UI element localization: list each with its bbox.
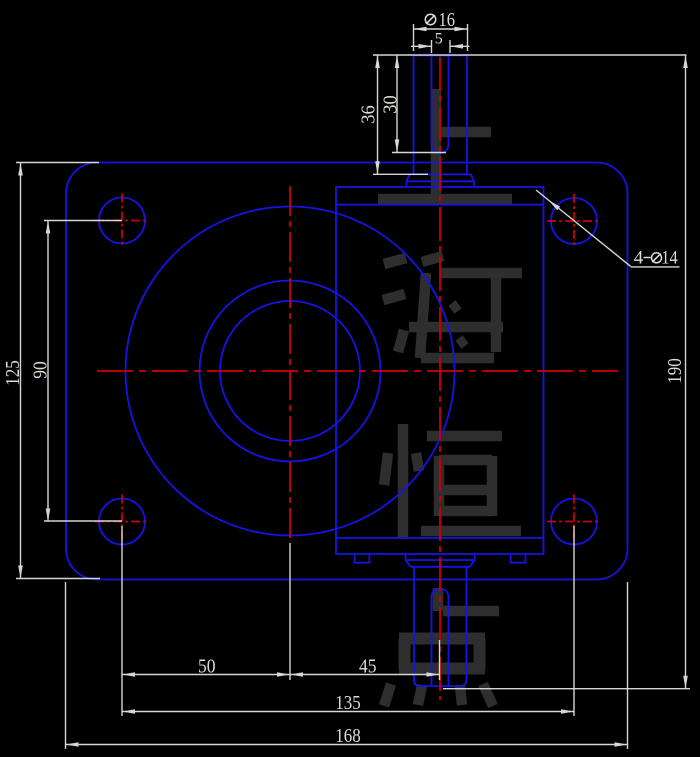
svg-text:135: 135 (335, 692, 361, 714)
svg-text:36: 36 (358, 105, 380, 124)
svg-text:190: 190 (664, 358, 686, 384)
svg-text:125: 125 (2, 360, 24, 386)
svg-text:90: 90 (30, 361, 52, 379)
svg-text:45: 45 (359, 655, 377, 677)
svg-text:16: 16 (439, 9, 456, 31)
svg-text:5: 5 (435, 31, 443, 48)
svg-text:30: 30 (380, 95, 402, 114)
svg-text:14: 14 (661, 248, 678, 269)
svg-text:4: 4 (634, 248, 644, 269)
svg-text:50: 50 (198, 655, 216, 677)
svg-text:168: 168 (335, 725, 361, 747)
